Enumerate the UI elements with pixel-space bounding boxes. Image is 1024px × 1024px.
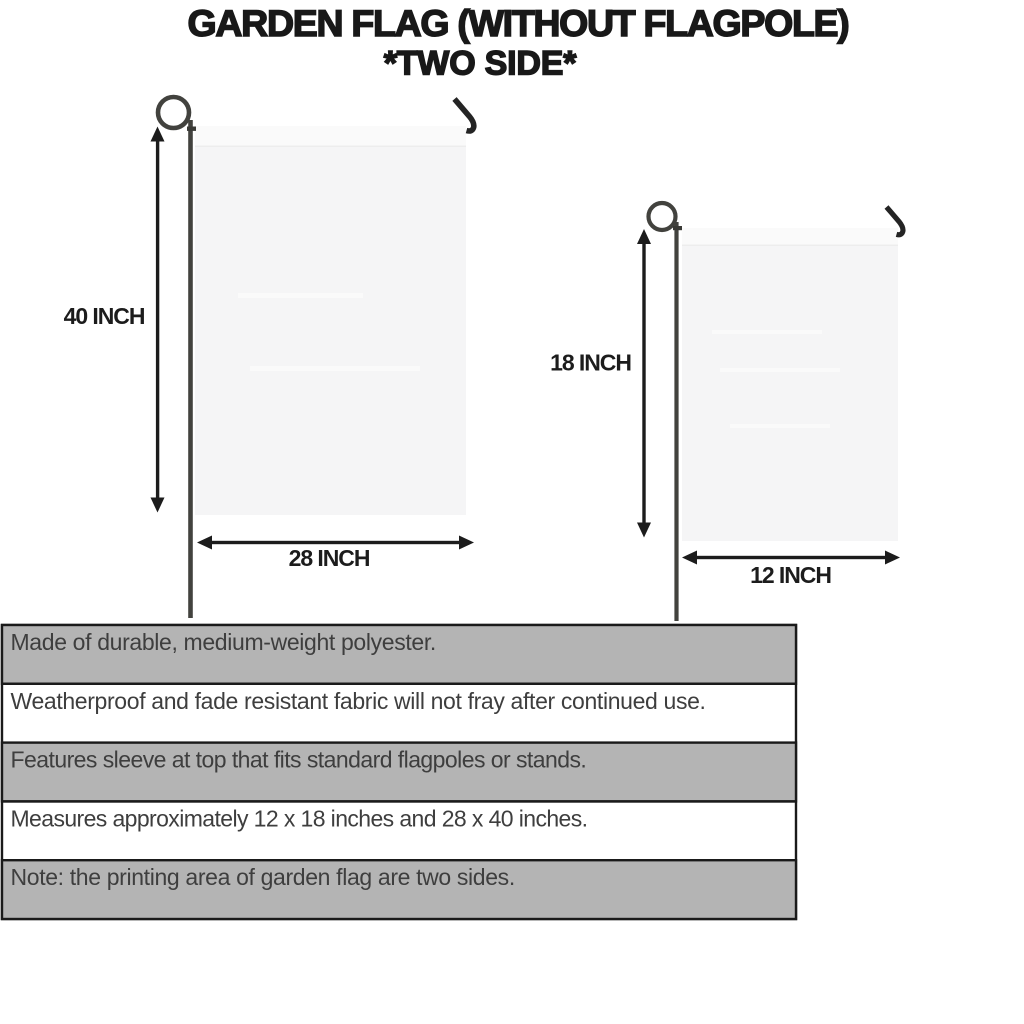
svg-text:GARDEN FLAG (WITHOUT FLAGPOLE): GARDEN FLAG (WITHOUT FLAGPOLE) — [188, 2, 849, 44]
svg-text:*TWO SIDE*: *TWO SIDE* — [384, 44, 578, 82]
svg-text:Measures approximately 12 x 18: Measures approximately 12 x 18 inches an… — [11, 805, 588, 831]
svg-text:40 INCH: 40 INCH — [64, 303, 145, 329]
svg-text:18 INCH: 18 INCH — [550, 350, 631, 376]
svg-text:12 INCH: 12 INCH — [750, 562, 831, 588]
svg-text:Made of durable, medium-weight: Made of durable, medium-weight polyester… — [11, 629, 436, 655]
svg-text:Features sleeve at top that fi: Features sleeve at top that fits standar… — [11, 747, 587, 773]
svg-text:Note: the printing area of gar: Note: the printing area of garden flag a… — [11, 864, 515, 890]
svg-text:Weatherproof and fade resistan: Weatherproof and fade resistant fabric w… — [11, 688, 706, 714]
svg-text:28 INCH: 28 INCH — [289, 545, 370, 571]
